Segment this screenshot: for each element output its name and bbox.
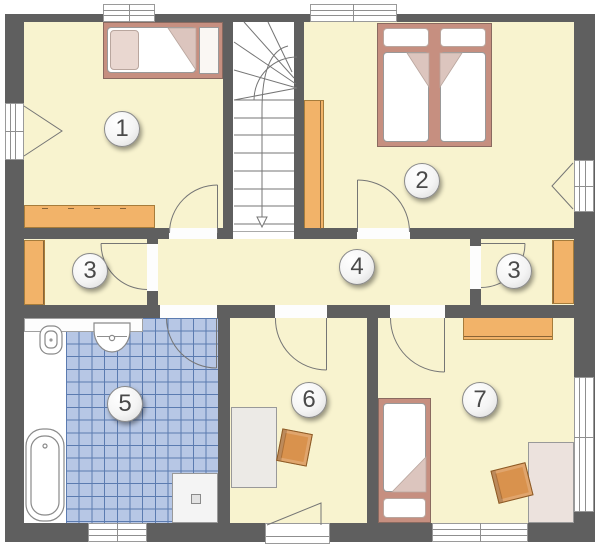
room-number-6: 6 xyxy=(302,386,315,414)
room-badge-7: 7 xyxy=(462,382,498,418)
room-number-4: 4 xyxy=(350,253,363,281)
stairs xyxy=(233,22,297,232)
room-number-3-left: 3 xyxy=(83,257,96,285)
room-badge-5: 5 xyxy=(107,386,143,422)
toilet-icon xyxy=(40,326,62,354)
door-room6 xyxy=(275,318,326,370)
room-number-2: 2 xyxy=(415,167,428,195)
bathtub-icon xyxy=(26,429,64,521)
room-number-5: 5 xyxy=(118,390,131,418)
room-badge-1: 1 xyxy=(104,111,140,147)
blanket-fold-room2-right xyxy=(440,53,462,87)
door-room2 xyxy=(358,180,410,232)
blanket-fold-room7 xyxy=(392,457,426,492)
furniture-details xyxy=(42,28,554,492)
floor-plan: 1 2 3 4 3 5 6 7 xyxy=(0,0,600,550)
room-badge-2: 2 xyxy=(404,163,440,199)
door-room7 xyxy=(391,318,445,372)
room-badge-4: 4 xyxy=(339,249,375,285)
door-bathroom xyxy=(167,318,217,368)
door-closet-left xyxy=(101,244,147,290)
room-badge-6: 6 xyxy=(291,382,327,418)
room-badge-3-right: 3 xyxy=(496,253,532,289)
room-number-1: 1 xyxy=(115,115,128,143)
room-number-7: 7 xyxy=(473,386,486,414)
door-room1 xyxy=(170,185,218,233)
room-number-3-right: 3 xyxy=(507,257,520,285)
room-badge-3-left: 3 xyxy=(72,253,108,289)
blanket-fold-room2-left xyxy=(407,53,429,87)
stair-direction-arrow xyxy=(257,217,267,227)
stair-walk-line xyxy=(262,46,288,226)
blanket-fold-room1 xyxy=(168,28,196,70)
balcony-door-leaf xyxy=(266,503,329,537)
washbasin-icon xyxy=(94,323,130,352)
